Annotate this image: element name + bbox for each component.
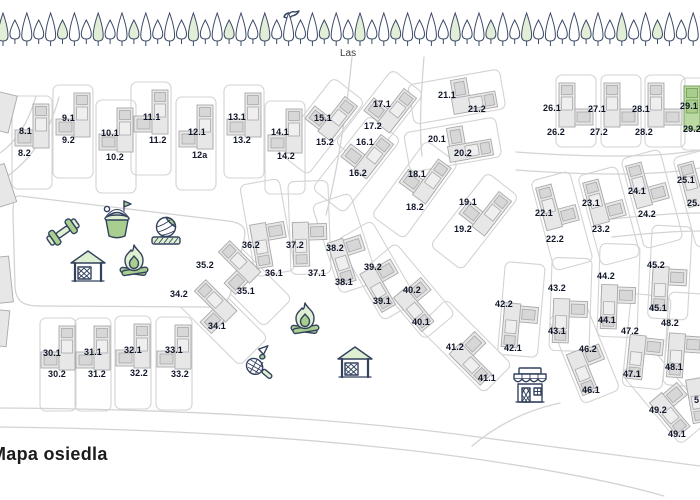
house-label-43.2: 43.2: [548, 283, 566, 293]
house-label-25.2: 25.2: [687, 198, 700, 208]
house-label-24.2: 24.2: [638, 209, 656, 219]
house-label-8.2: 8.2: [18, 148, 31, 158]
house-label-23.1: 23.1: [582, 198, 600, 208]
tree-icon: [260, 13, 270, 46]
tree-icon: [188, 13, 198, 46]
map-title: Mapa osiedla: [0, 444, 108, 464]
tree-icon: [391, 20, 401, 44]
tree-icon: [415, 20, 425, 44]
tree-icon: [319, 20, 329, 44]
house-label-38.2: 38.2: [326, 243, 344, 253]
house-label-38.1: 38.1: [335, 277, 353, 287]
house-label-28.2: 28.2: [635, 127, 653, 137]
tree-icon: [165, 13, 175, 46]
tree-icon: [22, 13, 32, 46]
house-label-40.1: 40.1: [412, 317, 430, 327]
house-label-37.1: 37.1: [308, 268, 326, 278]
tree-icon: [534, 20, 544, 44]
house-label-37.2: 37.2: [286, 240, 304, 250]
house-label-13.2: 13.2: [233, 135, 251, 145]
house-label-10.1: 10.1: [101, 128, 119, 138]
tree-icon: [653, 20, 663, 44]
edge-building-4: [0, 309, 10, 346]
house-label-14.2: 14.2: [277, 151, 295, 161]
house-label-9.1: 9.1: [62, 113, 75, 123]
house-label-26.2: 26.2: [547, 127, 565, 137]
house-label-14.1: 14.1: [271, 127, 289, 137]
house-label-41.2: 41.2: [446, 342, 464, 352]
house-label-36.2: 36.2: [242, 240, 260, 250]
house-label-45.2: 45.2: [647, 260, 665, 270]
tree-icon: [93, 13, 103, 46]
house-label-12.1: 12.1: [188, 127, 206, 137]
tree-icon: [474, 13, 484, 46]
tree-icon: [593, 13, 603, 46]
tree-icon: [426, 13, 436, 46]
tree-icon: [355, 13, 365, 46]
tree-icon: [438, 20, 448, 44]
house-label-22.1: 22.1: [535, 208, 553, 218]
house-label-36.1: 36.1: [265, 268, 283, 278]
house-label-21.1: 21.1: [438, 90, 456, 100]
house-label-47.1: 47.1: [623, 369, 641, 379]
tree-icon: [367, 20, 377, 44]
tree-icon: [569, 13, 579, 46]
house-label-41.1: 41.1: [478, 373, 496, 383]
house-label-45.1: 45.1: [649, 303, 667, 313]
house-label-18.1: 18.1: [408, 169, 426, 179]
house-label-32.1: 32.1: [124, 345, 142, 355]
forest-label: Las: [340, 48, 356, 59]
house-label-44.2: 44.2: [597, 271, 615, 281]
tree-icon: [557, 20, 567, 44]
tree-icon: [296, 20, 306, 44]
house-label-15.1: 15.1: [314, 113, 332, 123]
estate-map-svg: 8.18.29.19.210.110.211.111.212.112a13.11…: [0, 0, 700, 500]
house-label-20.1: 20.1: [428, 134, 446, 144]
tree-icon: [462, 20, 472, 44]
tree-icon: [129, 20, 139, 44]
house-label-16.2: 16.2: [349, 168, 367, 178]
house-label-5: 5: [694, 395, 699, 405]
house-label-34.2: 34.2: [170, 289, 188, 299]
house-48[interactable]: [666, 333, 700, 379]
house-label-33.2: 33.2: [171, 369, 189, 379]
shop-icon: [514, 368, 546, 402]
tree-icon: [605, 20, 615, 44]
house-label-28.1: 28.1: [632, 104, 650, 114]
tree-icon: [307, 13, 317, 46]
house-label-20.2: 20.2: [454, 148, 472, 158]
tree-icon: [105, 20, 115, 44]
house-label-34.1: 34.1: [208, 321, 226, 331]
tree-icon: [545, 13, 555, 46]
tree-icon: [236, 13, 246, 46]
house-label-48.2: 48.2: [661, 318, 679, 328]
tree-icon: [450, 13, 460, 46]
house-label-11.1: 11.1: [143, 112, 160, 122]
house-label-9.2: 9.2: [62, 135, 75, 145]
tree-icon: [510, 20, 520, 44]
tree-icon: [617, 13, 627, 46]
tree-icon: [46, 13, 56, 46]
tree-icon: [343, 20, 353, 44]
house-label-21.2: 21.2: [468, 104, 486, 114]
tree-icon: [581, 20, 591, 44]
tree-icon: [58, 20, 68, 44]
tree-icon: [498, 13, 508, 46]
tree-icon: [688, 13, 698, 46]
tree-icon: [486, 20, 496, 44]
house-label-49.2: 49.2: [649, 405, 667, 415]
tree-icon: [69, 13, 79, 46]
house-label-18.2: 18.2: [406, 202, 424, 212]
tree-icon: [34, 20, 44, 44]
house-label-48.1: 48.1: [665, 362, 683, 372]
house-label-17.2: 17.2: [364, 121, 382, 131]
bird-icon: [284, 11, 299, 18]
house-label-27.2: 27.2: [590, 127, 608, 137]
tree-icon: [153, 20, 163, 44]
house-label-39.1: 39.1: [373, 296, 391, 306]
house-label-40.2: 40.2: [403, 285, 421, 295]
house-label-32.2: 32.2: [130, 368, 148, 378]
house-label-11.2: 11.2: [149, 135, 166, 145]
house-label-49.1: 49.1: [668, 429, 686, 439]
badminton-court-icon: [241, 346, 273, 383]
tree-icon: [10, 20, 20, 44]
tree-icon: [81, 20, 91, 44]
house-label-43.1: 43.1: [548, 326, 566, 336]
house-label-29.2: 29.2: [683, 124, 700, 134]
tree-icon: [629, 20, 639, 44]
tree-icon: [212, 13, 222, 46]
tree-icon: [177, 20, 187, 44]
house-label-19.1: 19.1: [459, 197, 477, 207]
house-label-42.1: 42.1: [504, 343, 522, 353]
tree-icon: [379, 13, 389, 46]
house-label-33.1: 33.1: [165, 345, 183, 355]
house-28[interactable]: [648, 83, 682, 127]
house-43[interactable]: [552, 298, 588, 343]
tree-icon: [676, 20, 686, 44]
tree-icon: [641, 13, 651, 46]
house-label-29.1: 29.1: [680, 101, 698, 111]
house-label-24.1: 24.1: [628, 186, 646, 196]
house-label-44.1: 44.1: [598, 315, 616, 325]
house-label-16.1: 16.1: [356, 137, 374, 147]
house-label-46.1: 46.1: [582, 385, 600, 395]
house-label-10.2: 10.2: [106, 152, 124, 162]
house-label-39.2: 39.2: [364, 262, 382, 272]
house-label-23.2: 23.2: [592, 224, 610, 234]
tree-icon: [141, 13, 151, 46]
forest-strip: [0, 13, 698, 46]
house-label-13.1: 13.1: [228, 112, 246, 122]
estate-map: 8.18.29.19.210.110.211.111.212.112a13.11…: [0, 0, 700, 500]
house-label-46.2: 46.2: [579, 344, 597, 354]
house-label-25.1: 25.1: [677, 175, 695, 185]
house-label-15.2: 15.2: [316, 137, 334, 147]
tree-icon: [522, 13, 532, 46]
house-label-27.1: 27.1: [588, 104, 606, 114]
house-label-31.1: 31.1: [84, 347, 102, 357]
campfire-2-icon: [291, 303, 319, 334]
gazebo-2-icon: [338, 347, 372, 377]
tree-icon: [272, 20, 282, 44]
house-label-35.1: 35.1: [237, 286, 255, 296]
house-label-30.2: 30.2: [48, 369, 66, 379]
tree-icon: [403, 13, 413, 46]
tree-icon: [664, 13, 674, 46]
house-label-31.2: 31.2: [88, 369, 106, 379]
edge-building-1: [0, 91, 17, 133]
tree-icon: [0, 13, 8, 46]
tree-icon: [331, 13, 341, 46]
house-41[interactable]: [449, 330, 504, 385]
house-label-12a: 12a: [192, 150, 208, 160]
house-label-26.1: 26.1: [543, 103, 561, 113]
house-label-22.2: 22.2: [546, 234, 564, 244]
house-label-47.2: 47.2: [621, 326, 639, 336]
house-label-8.1: 8.1: [19, 126, 32, 136]
house-label-35.2: 35.2: [196, 260, 214, 270]
tree-icon: [117, 13, 127, 46]
house-label-17.1: 17.1: [373, 99, 391, 109]
house-label-42.2: 42.2: [495, 299, 513, 309]
house-label-19.2: 19.2: [454, 224, 472, 234]
tree-icon: [248, 20, 258, 44]
edge-building-3: [0, 256, 13, 304]
tree-icon: [200, 20, 210, 44]
house-label-30.1: 30.1: [43, 348, 61, 358]
tree-icon: [224, 20, 234, 44]
